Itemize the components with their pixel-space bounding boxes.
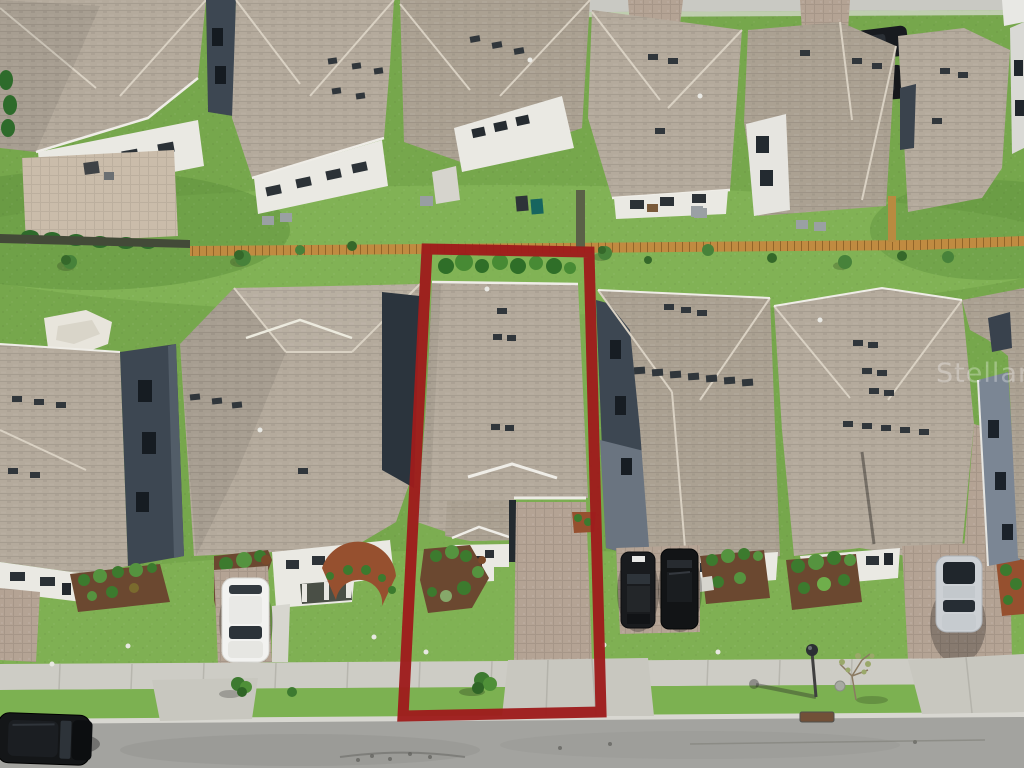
patio-table <box>104 172 114 180</box>
utility-cover <box>835 681 845 691</box>
trash-bin <box>515 196 528 212</box>
parkway-tree-2 <box>287 687 297 697</box>
subject-house <box>408 253 596 711</box>
ac-unit <box>420 196 433 206</box>
aerial-photo-canvas <box>0 0 1024 768</box>
patio-pavers <box>22 150 178 244</box>
fence-divider-2 <box>888 196 896 242</box>
corner-building-wall <box>1010 22 1024 154</box>
wall-shadow-strip <box>509 500 516 562</box>
front-walk <box>272 604 290 662</box>
ac-unit <box>262 216 274 225</box>
grill <box>83 161 100 175</box>
ac-unit <box>796 220 808 229</box>
aerial-photo-scene: Stellar <box>0 0 1024 768</box>
fence-divider-1 <box>576 190 585 248</box>
house-top-4 <box>588 10 742 219</box>
ac-unit <box>814 222 826 231</box>
black-car-2 <box>658 548 702 632</box>
driveway <box>0 588 40 662</box>
house-top-5 <box>744 22 896 231</box>
utility-box <box>647 204 658 212</box>
walk-pad <box>432 166 460 204</box>
side-wall-dark <box>206 0 236 116</box>
silver-suv <box>930 556 986 664</box>
ac-unit <box>280 213 292 222</box>
storm-drain <box>800 712 834 722</box>
side-notch-dark <box>900 84 916 150</box>
black-car-1 <box>617 552 659 632</box>
ac-unit <box>691 206 703 217</box>
black-suv-street <box>0 712 100 765</box>
roof <box>774 288 974 556</box>
house-right-center <box>596 290 780 634</box>
trash-bin-teal <box>530 199 543 215</box>
utility-marker <box>424 650 429 655</box>
white-suv <box>219 578 273 664</box>
